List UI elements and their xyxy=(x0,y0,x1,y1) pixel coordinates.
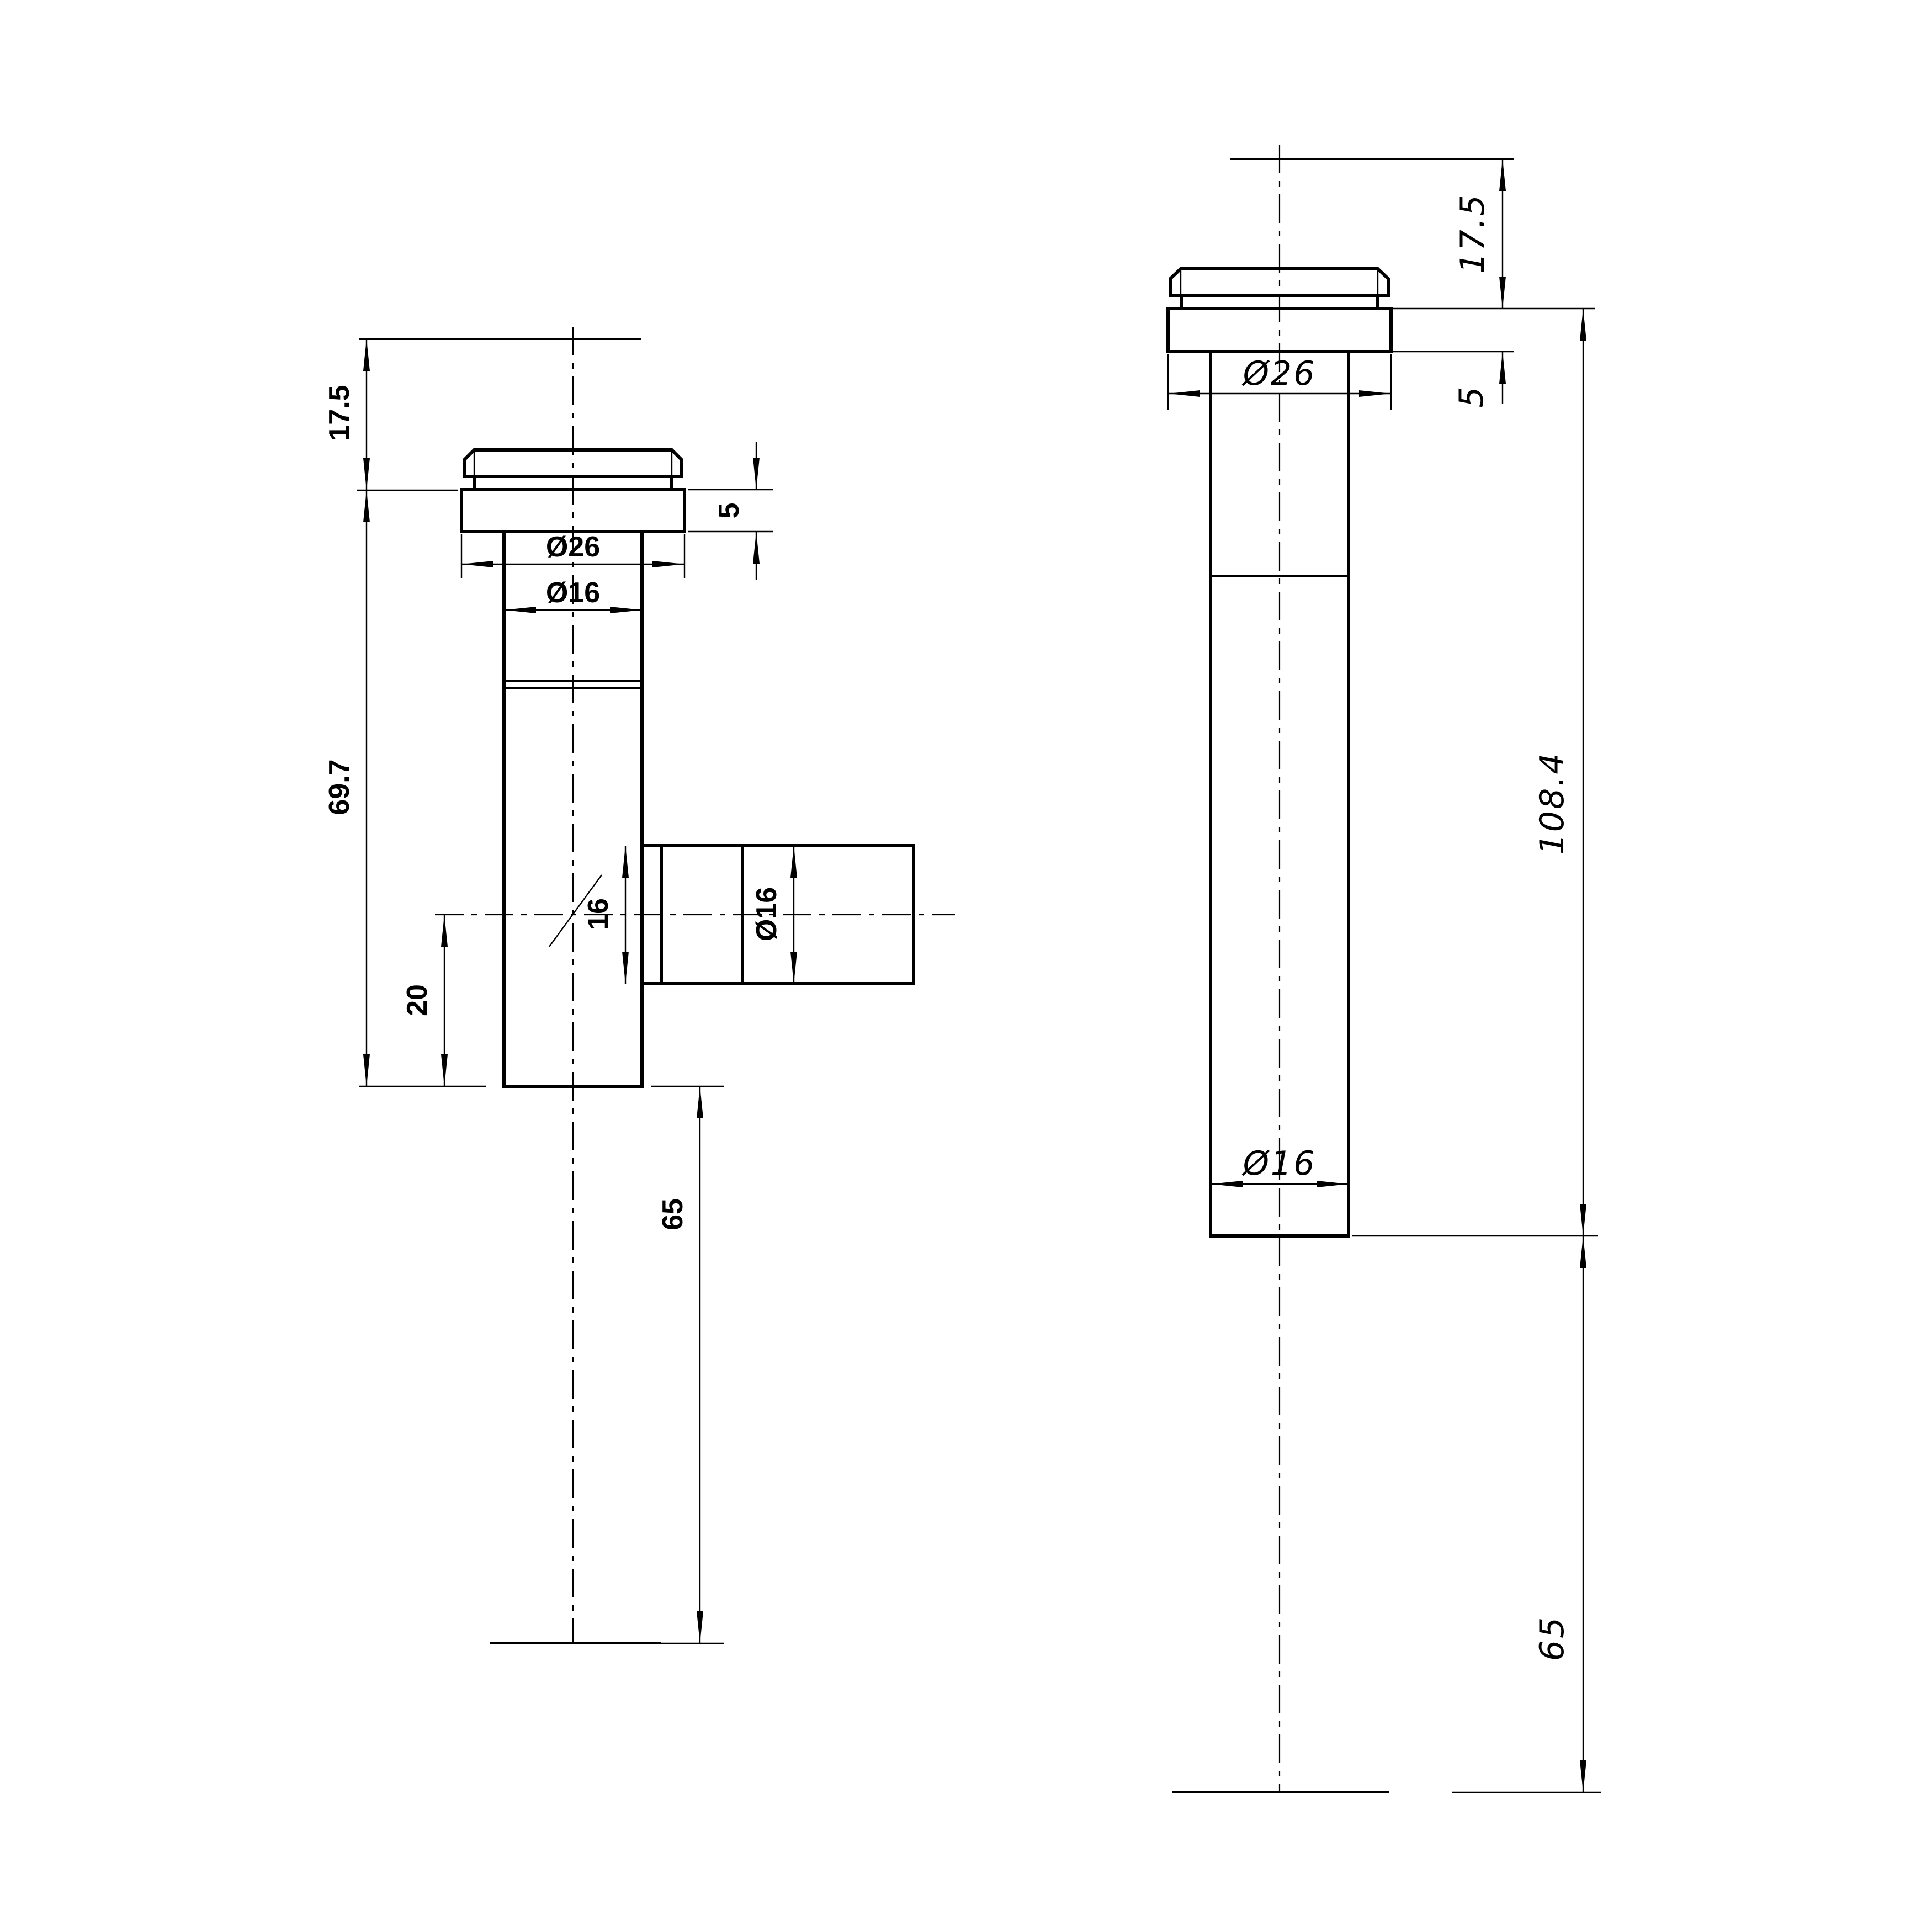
dim-label-left-d16-branch: Ø16 xyxy=(751,887,783,941)
dim-label-left-d26: Ø26 xyxy=(546,531,600,563)
dim-label-right-108-4: 108.4 xyxy=(1533,752,1572,855)
dim-label-left-65: 65 xyxy=(657,1198,689,1230)
right-dimensions: 17.5 5 Ø26 Ø16 108.4 65 xyxy=(1168,159,1583,1792)
dim-label-right-65: 65 xyxy=(1533,1616,1572,1661)
dim-label-left-17-5: 17.5 xyxy=(323,385,355,440)
left-dimensions: 17.5 69.7 20 65 Ø26 Ø16 16 Ø16 5 xyxy=(323,339,794,1643)
drawing-sheet: 17.5 69.7 20 65 Ø26 Ø16 16 Ø16 5 xyxy=(0,0,1932,1932)
dim-label-left-20: 20 xyxy=(401,984,433,1016)
dim-label-left-d16-shaft: Ø16 xyxy=(546,577,600,609)
left-part-outline xyxy=(461,450,914,1086)
technical-drawing: 17.5 69.7 20 65 Ø26 Ø16 16 Ø16 5 xyxy=(0,0,1932,1932)
left-view: 17.5 69.7 20 65 Ø26 Ø16 16 Ø16 5 xyxy=(323,327,955,1643)
dim-label-left-5: 5 xyxy=(713,503,745,519)
dim-label-right-17-5: 17.5 xyxy=(1453,193,1492,274)
dim-label-right-5: 5 xyxy=(1452,385,1491,407)
dim-label-right-d26: Ø26 xyxy=(1241,354,1317,393)
dim-label-right-d16: Ø16 xyxy=(1241,1144,1317,1183)
right-view: 17.5 5 Ø26 Ø16 108.4 65 xyxy=(1168,145,1601,1792)
dim-label-left-69-7: 69.7 xyxy=(323,759,355,815)
dim-label-left-16-branch: 16 xyxy=(582,898,614,930)
